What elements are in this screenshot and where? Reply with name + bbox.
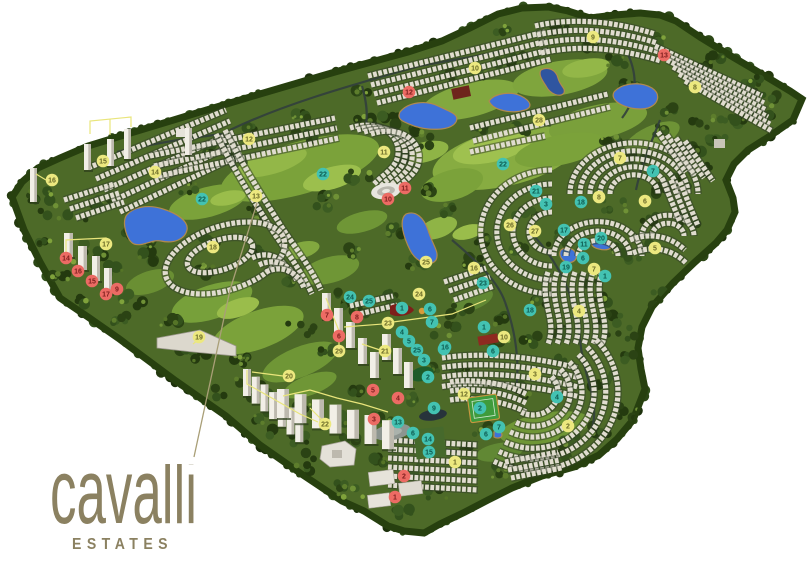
- svg-text:19: 19: [195, 335, 203, 342]
- svg-text:3: 3: [544, 202, 548, 209]
- svg-text:8: 8: [597, 195, 601, 202]
- svg-text:16: 16: [470, 266, 478, 273]
- svg-text:1: 1: [453, 460, 457, 467]
- svg-text:16: 16: [441, 345, 449, 352]
- svg-text:11: 11: [380, 150, 388, 157]
- svg-text:17: 17: [102, 242, 110, 249]
- svg-text:14: 14: [151, 170, 159, 177]
- svg-text:4: 4: [396, 396, 400, 403]
- svg-text:2: 2: [566, 424, 570, 431]
- svg-text:1: 1: [393, 495, 397, 502]
- svg-text:13: 13: [394, 420, 402, 427]
- svg-text:24: 24: [415, 292, 423, 299]
- svg-text:7: 7: [325, 313, 329, 320]
- svg-text:7: 7: [618, 156, 622, 163]
- svg-text:20: 20: [597, 236, 605, 243]
- svg-text:29: 29: [335, 349, 343, 356]
- svg-text:6: 6: [581, 256, 585, 263]
- svg-text:19: 19: [562, 265, 570, 272]
- svg-text:17: 17: [560, 228, 568, 235]
- svg-text:7: 7: [592, 267, 596, 274]
- svg-text:ESTATES: ESTATES: [72, 536, 173, 553]
- svg-text:5: 5: [407, 339, 411, 346]
- svg-text:11: 11: [401, 186, 409, 193]
- svg-text:1: 1: [603, 274, 607, 281]
- svg-text:11: 11: [580, 242, 588, 249]
- svg-text:21: 21: [381, 349, 389, 356]
- svg-text:1: 1: [400, 306, 404, 313]
- svg-text:10: 10: [500, 335, 508, 342]
- svg-text:8: 8: [693, 85, 697, 92]
- svg-text:21: 21: [532, 189, 540, 196]
- svg-text:18: 18: [526, 308, 534, 315]
- svg-text:6: 6: [643, 199, 647, 206]
- svg-text:22: 22: [499, 162, 507, 169]
- svg-text:14: 14: [62, 256, 70, 263]
- svg-text:9: 9: [432, 406, 436, 413]
- svg-text:5: 5: [371, 388, 375, 395]
- svg-text:9: 9: [115, 287, 119, 294]
- svg-text:13: 13: [252, 194, 260, 201]
- svg-text:10: 10: [471, 66, 479, 73]
- svg-text:7: 7: [651, 169, 655, 176]
- svg-text:1: 1: [482, 325, 486, 332]
- svg-text:13: 13: [660, 53, 668, 60]
- svg-text:4: 4: [400, 330, 404, 337]
- svg-text:5: 5: [653, 246, 657, 253]
- svg-text:7: 7: [497, 425, 501, 432]
- svg-text:18: 18: [209, 245, 217, 252]
- svg-text:6: 6: [484, 432, 488, 439]
- svg-text:16: 16: [74, 269, 82, 276]
- svg-text:23: 23: [384, 321, 392, 328]
- svg-text:3: 3: [533, 372, 537, 379]
- svg-text:3: 3: [372, 417, 376, 424]
- svg-text:18: 18: [577, 200, 585, 207]
- svg-text:22: 22: [198, 197, 206, 204]
- svg-text:20: 20: [285, 374, 293, 381]
- svg-text:27: 27: [531, 229, 539, 236]
- svg-text:25: 25: [422, 260, 430, 267]
- svg-text:8: 8: [355, 315, 359, 322]
- svg-text:23: 23: [479, 281, 487, 288]
- svg-text:15: 15: [425, 450, 433, 457]
- svg-text:12: 12: [460, 392, 468, 399]
- svg-text:6: 6: [491, 349, 495, 356]
- svg-text:12: 12: [405, 90, 413, 97]
- svg-text:17: 17: [102, 292, 110, 299]
- svg-text:16: 16: [48, 178, 56, 185]
- svg-text:2: 2: [426, 375, 430, 382]
- svg-text:28: 28: [535, 118, 543, 125]
- svg-text:6: 6: [411, 431, 415, 438]
- svg-text:2: 2: [478, 406, 482, 413]
- svg-text:25: 25: [413, 348, 421, 355]
- svg-text:4: 4: [555, 395, 559, 402]
- svg-text:14: 14: [424, 437, 432, 444]
- svg-text:10: 10: [384, 197, 392, 204]
- svg-text:26: 26: [506, 223, 514, 230]
- svg-text:24: 24: [346, 295, 354, 302]
- svg-text:4: 4: [577, 309, 581, 316]
- svg-text:15: 15: [99, 159, 107, 166]
- svg-text:22: 22: [319, 172, 327, 179]
- svg-text:6: 6: [428, 307, 432, 314]
- svg-text:12: 12: [245, 137, 253, 144]
- svg-text:7: 7: [430, 320, 434, 327]
- svg-text:25: 25: [365, 299, 373, 306]
- svg-text:9: 9: [591, 35, 595, 42]
- svg-text:2: 2: [402, 474, 406, 481]
- svg-text:3: 3: [422, 358, 426, 365]
- svg-text:6: 6: [337, 334, 341, 341]
- svg-text:22: 22: [321, 422, 329, 429]
- svg-text:15: 15: [88, 279, 96, 286]
